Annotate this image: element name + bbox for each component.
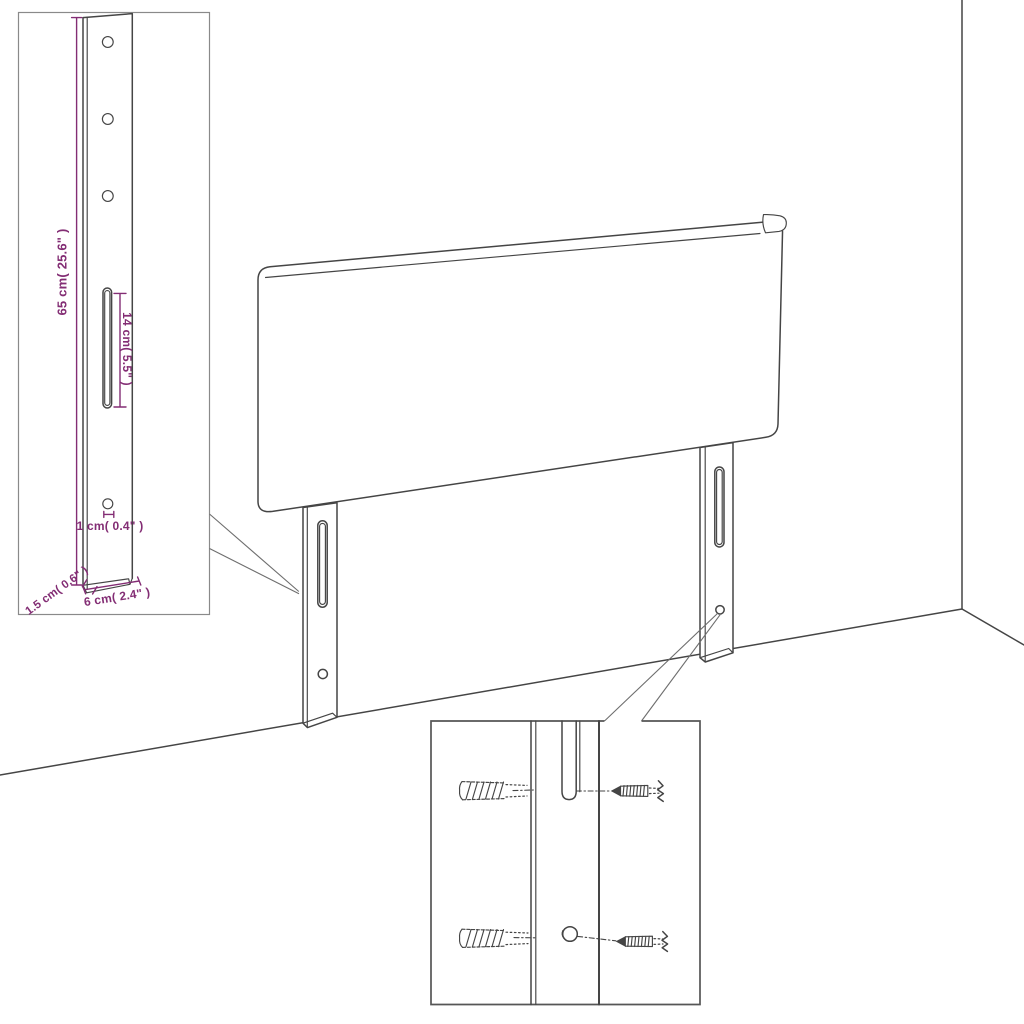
dimension-slot-length-label: 14 cm( 5.5" ) xyxy=(120,312,134,386)
left-mounting-leg xyxy=(303,503,337,728)
right-mounting-leg xyxy=(700,443,733,662)
dimension-height-label: 65 cm( 25.6" ) xyxy=(55,228,70,315)
floor-line-right xyxy=(962,609,1024,645)
inset-leader-line-2 xyxy=(210,549,300,594)
inset-leader-line-1 xyxy=(210,514,299,592)
diagram-canvas xyxy=(0,0,1024,1024)
hardware-leader-line-2 xyxy=(642,614,721,721)
dimension-hole-diameter-label: 1 cm( 0.4" ) xyxy=(77,519,144,533)
hardware-detail-inset xyxy=(431,613,721,1004)
hardware-inset-frame xyxy=(431,721,700,1005)
headboard-mounting-diagram: 65 cm( 25.6" ) 14 cm( 5.5" ) 1 cm( 0.4" … xyxy=(0,0,1024,1024)
panel-corner-tab xyxy=(763,215,786,233)
